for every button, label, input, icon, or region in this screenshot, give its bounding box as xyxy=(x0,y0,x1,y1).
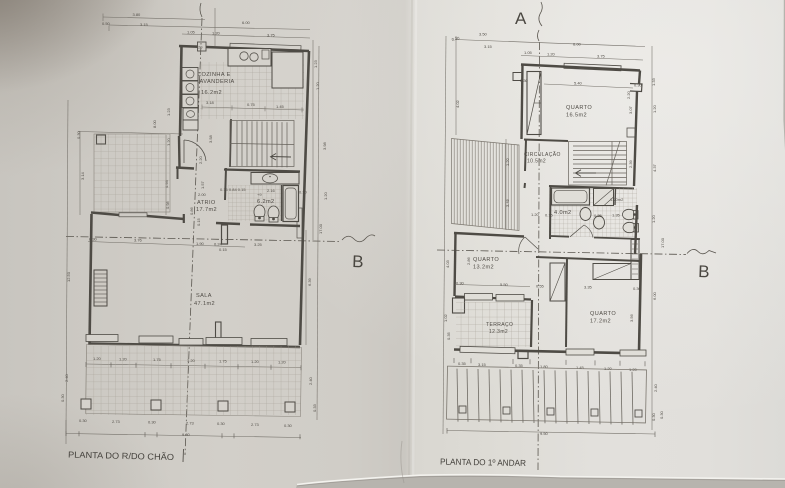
svg-text:1.45: 1.45 xyxy=(276,104,285,109)
svg-text:1.70m2: 1.70m2 xyxy=(610,197,624,202)
svg-text:3.18: 3.18 xyxy=(206,100,215,105)
svg-text:16.2m2: 16.2m2 xyxy=(201,90,222,96)
svg-text:17.00: 17.00 xyxy=(318,223,323,234)
svg-text:0.30: 0.30 xyxy=(299,190,308,195)
svg-text:4.02: 4.02 xyxy=(455,99,460,108)
svg-text:CIRCULAÇÃO: CIRCULAÇÃO xyxy=(524,151,561,158)
svg-text:1.75: 1.75 xyxy=(153,357,162,362)
svg-text:3.50: 3.50 xyxy=(479,32,488,37)
svg-text:0.35: 0.35 xyxy=(458,361,467,366)
svg-text:4.03: 4.03 xyxy=(445,259,450,268)
svg-text:0.30: 0.30 xyxy=(456,281,465,286)
svg-text:5.50: 5.50 xyxy=(500,282,509,287)
svg-text:6.00: 6.00 xyxy=(652,291,657,300)
svg-text:0.30: 0.30 xyxy=(651,412,656,421)
svg-text:2.40: 2.40 xyxy=(653,383,658,392)
svg-text:1.02: 1.02 xyxy=(443,313,448,322)
svg-text:3.07: 3.07 xyxy=(628,105,633,114)
svg-text:B: B xyxy=(352,252,364,271)
svg-text:1.23: 1.23 xyxy=(313,59,318,68)
svg-text:SALA: SALA xyxy=(196,293,212,299)
svg-text:1.20: 1.20 xyxy=(531,212,540,217)
svg-text:3.15: 3.15 xyxy=(478,362,487,367)
svg-text:3.75: 3.75 xyxy=(267,33,276,38)
svg-text:0.30: 0.30 xyxy=(217,421,226,426)
svg-text:6.39: 6.39 xyxy=(307,277,312,286)
svg-text:1.20: 1.20 xyxy=(119,357,128,362)
svg-text:3.75: 3.75 xyxy=(597,54,606,59)
svg-text:1.20: 1.20 xyxy=(323,191,328,200)
svg-text:4.0m2: 4.0m2 xyxy=(554,210,572,216)
svg-text:3.80: 3.80 xyxy=(133,12,142,17)
svg-text:2.40: 2.40 xyxy=(64,373,69,382)
svg-text:0.15: 0.15 xyxy=(545,213,554,218)
svg-text:0.30: 0.30 xyxy=(76,130,81,139)
svg-text:A: A xyxy=(515,9,527,28)
svg-text:3.25: 3.25 xyxy=(254,242,263,247)
svg-text:0.30: 0.30 xyxy=(148,420,157,425)
svg-text:QUARTO: QUARTO xyxy=(473,257,499,263)
svg-text:2.00: 2.00 xyxy=(198,192,207,197)
svg-text:+9: +9 xyxy=(257,192,262,197)
svg-text:6.2m2: 6.2m2 xyxy=(257,199,275,205)
svg-text:2.39: 2.39 xyxy=(628,159,633,168)
svg-text:17.7m2: 17.7m2 xyxy=(196,207,217,213)
svg-text:12.50: 12.50 xyxy=(66,271,71,282)
svg-text:1.20: 1.20 xyxy=(251,359,260,364)
svg-text:1.20: 1.20 xyxy=(547,52,556,57)
svg-text:QUARTO: QUARTO xyxy=(590,311,616,317)
svg-text:2.40: 2.40 xyxy=(308,376,313,385)
svg-text:2.16: 2.16 xyxy=(267,188,276,193)
svg-text:1.05: 1.05 xyxy=(524,50,533,55)
svg-text:3.15: 3.15 xyxy=(140,22,149,27)
svg-text:0.35: 0.35 xyxy=(594,213,603,218)
svg-text:B: B xyxy=(698,262,710,281)
svg-text:0.55: 0.55 xyxy=(536,284,545,289)
svg-text:1.20: 1.20 xyxy=(93,356,102,361)
svg-text:10.5m2: 10.5m2 xyxy=(527,159,546,165)
svg-text:1.20: 1.20 xyxy=(187,358,196,363)
svg-text:3.98: 3.98 xyxy=(322,141,327,150)
svg-text:1.20: 1.20 xyxy=(651,214,656,223)
svg-text:0.30: 0.30 xyxy=(634,83,643,88)
svg-text:9.80: 9.80 xyxy=(182,432,191,437)
svg-text:0.35: 0.35 xyxy=(446,331,451,340)
svg-text:ATRIO: ATRIO xyxy=(197,200,216,206)
svg-text:0.30: 0.30 xyxy=(520,78,529,83)
svg-text:20: 20 xyxy=(198,45,203,50)
svg-text:2.86: 2.86 xyxy=(466,256,471,265)
svg-text:0.86: 0.86 xyxy=(189,206,194,215)
svg-text:3.14: 3.14 xyxy=(80,171,85,180)
svg-text:0.30: 0.30 xyxy=(60,393,65,402)
svg-text:1.90: 1.90 xyxy=(196,241,205,246)
svg-text:1.35: 1.35 xyxy=(612,213,621,218)
svg-text:1.20: 1.20 xyxy=(604,366,613,371)
svg-text:COZINHA E: COZINHA E xyxy=(197,72,231,78)
svg-text:4.37: 4.37 xyxy=(652,163,657,172)
svg-text:2.20: 2.20 xyxy=(198,155,203,164)
svg-text:17.00: 17.00 xyxy=(660,237,665,248)
svg-text:17.2m2: 17.2m2 xyxy=(590,319,611,325)
svg-text:0.33: 0.33 xyxy=(312,403,317,412)
svg-text:PLANTA DO 1º ANDAR: PLANTA DO 1º ANDAR xyxy=(440,457,526,468)
svg-text:8.00: 8.00 xyxy=(152,119,157,128)
svg-text:2.20: 2.20 xyxy=(626,90,631,99)
svg-text:6.00: 6.00 xyxy=(242,20,251,25)
svg-text:3.56: 3.56 xyxy=(629,313,634,322)
svg-text:0.15: 0.15 xyxy=(219,247,228,252)
svg-text:TERRAÇO: TERRAÇO xyxy=(486,322,513,328)
svg-text:1.57: 1.57 xyxy=(200,180,205,189)
svg-text:1.20: 1.20 xyxy=(315,81,320,90)
svg-text:3.76: 3.76 xyxy=(134,238,143,243)
svg-text:0.24: 0.24 xyxy=(214,242,223,247)
svg-text:1.75: 1.75 xyxy=(219,359,228,364)
svg-text:3.58: 3.58 xyxy=(208,134,213,143)
svg-text:12.3m2: 12.3m2 xyxy=(489,329,508,335)
svg-text:9.50: 9.50 xyxy=(540,431,549,436)
svg-text:5.40: 5.40 xyxy=(574,81,583,86)
svg-text:0.30: 0.30 xyxy=(89,237,98,242)
svg-text:47.1m2: 47.1m2 xyxy=(194,301,215,307)
svg-text:2.73: 2.73 xyxy=(112,419,121,424)
svg-text:0.75: 0.75 xyxy=(247,102,256,107)
svg-text:2.73: 2.73 xyxy=(251,422,260,427)
svg-text:1.45: 1.45 xyxy=(576,365,585,370)
svg-text:LAVANDERIA: LAVANDERIA xyxy=(196,79,235,85)
svg-text:0.50: 0.50 xyxy=(102,21,111,26)
svg-text:1.23: 1.23 xyxy=(166,107,171,116)
svg-text:0.30: 0.30 xyxy=(79,418,88,423)
svg-text:0.30: 0.30 xyxy=(451,35,460,42)
svg-text:1.20: 1.20 xyxy=(278,360,287,365)
svg-text:1.33: 1.33 xyxy=(651,77,656,86)
svg-text:16.5m2: 16.5m2 xyxy=(566,113,587,119)
svg-text:1.05: 1.05 xyxy=(187,30,196,35)
svg-text:QUARTO: QUARTO xyxy=(566,105,592,111)
svg-text:PLANTA DO R/DO CHÃO: PLANTA DO R/DO CHÃO xyxy=(68,450,174,463)
svg-text:6.00: 6.00 xyxy=(573,42,582,47)
svg-text:2.73: 2.73 xyxy=(186,421,195,426)
svg-text:0.15 0.84 0.15: 0.15 0.84 0.15 xyxy=(220,187,246,192)
svg-text:3.35: 3.35 xyxy=(584,285,593,290)
svg-text:3.15: 3.15 xyxy=(484,44,493,49)
svg-text:0.30: 0.30 xyxy=(284,423,293,428)
svg-text:0.15: 0.15 xyxy=(196,217,201,226)
svg-text:1.20: 1.20 xyxy=(212,31,221,36)
svg-text:0.30: 0.30 xyxy=(659,410,664,419)
svg-text:13.2m2: 13.2m2 xyxy=(473,265,494,271)
svg-text:1.20: 1.20 xyxy=(652,104,657,113)
